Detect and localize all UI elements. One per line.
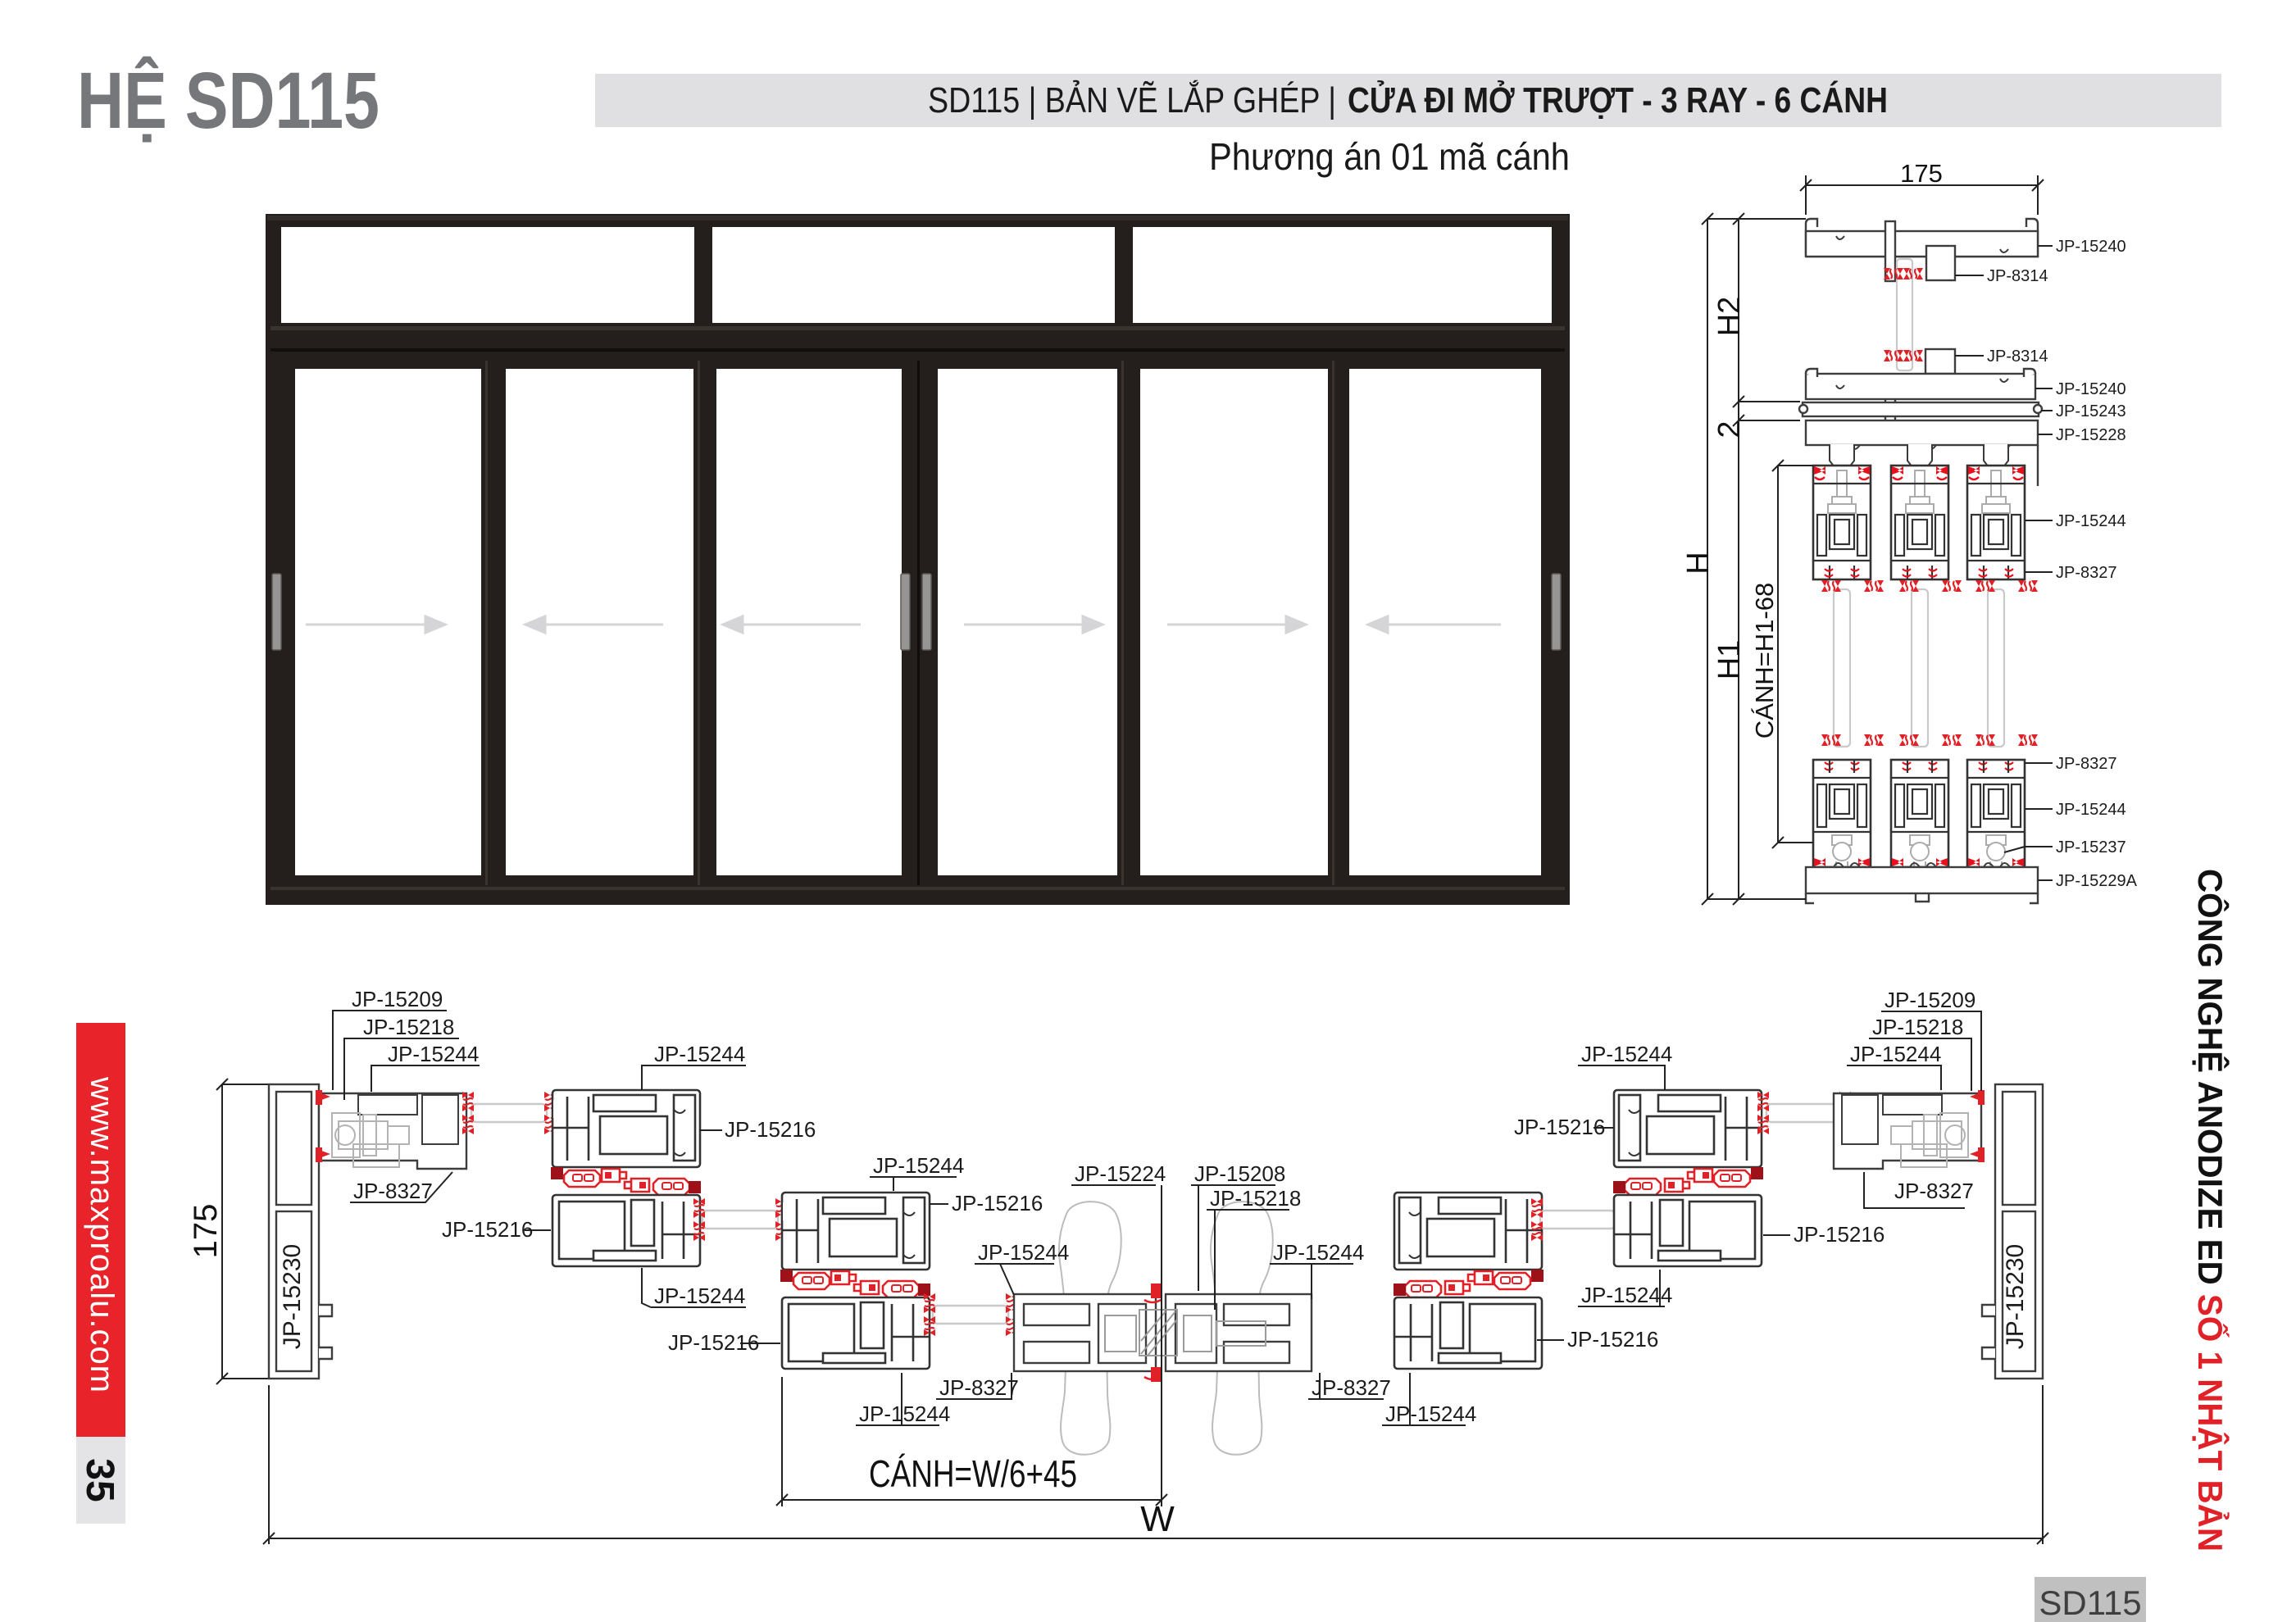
svg-text:JP-15244: JP-15244 <box>654 1042 745 1066</box>
svg-text:JP-15216: JP-15216 <box>668 1330 759 1355</box>
svg-text:JP-15230: JP-15230 <box>2002 1244 2029 1349</box>
svg-text:JP-15240: JP-15240 <box>2056 380 2126 398</box>
svg-text:www.maxproalu.com: www.maxproalu.com <box>84 1076 120 1393</box>
svg-text:JP-8327: JP-8327 <box>939 1375 1019 1400</box>
svg-text:JP-15216: JP-15216 <box>952 1191 1043 1215</box>
svg-text:JP-15244: JP-15244 <box>388 1042 479 1066</box>
svg-text:175: 175 <box>188 1204 224 1259</box>
svg-text:JP-15208: JP-15208 <box>1194 1161 1285 1186</box>
svg-text:JP-15209: JP-15209 <box>352 987 443 1011</box>
svg-text:JP-15244: JP-15244 <box>1850 1042 1941 1066</box>
svg-text:JP-15216: JP-15216 <box>1514 1115 1605 1139</box>
svg-text:JP-15244: JP-15244 <box>1273 1240 1364 1265</box>
svg-text:JP-15216: JP-15216 <box>1567 1327 1658 1352</box>
svg-text:SD115: SD115 <box>2039 1583 2141 1622</box>
svg-text:JP-15224: JP-15224 <box>1075 1161 1166 1186</box>
svg-text:JP-15218: JP-15218 <box>1210 1186 1301 1211</box>
svg-text:H2: H2 <box>1712 297 1747 337</box>
svg-text:35: 35 <box>78 1458 121 1502</box>
svg-text:2: 2 <box>1712 420 1747 438</box>
svg-text:JP-8327: JP-8327 <box>353 1179 433 1203</box>
svg-text:SD115 | BẢN VẼ LẮP GHÉP |: SD115 | BẢN VẼ LẮP GHÉP | <box>928 80 1336 120</box>
svg-text:JP-15244: JP-15244 <box>1581 1283 1672 1307</box>
svg-text:JP-15244: JP-15244 <box>1581 1042 1672 1066</box>
svg-text:JP-15216: JP-15216 <box>725 1117 816 1142</box>
svg-text:JP-15243: JP-15243 <box>2056 402 2126 420</box>
svg-text:Phương án 01 mã cánh: Phương án 01 mã cánh <box>1209 135 1570 178</box>
svg-text:JP-15244: JP-15244 <box>2056 801 2126 819</box>
svg-text:JP-15228: JP-15228 <box>2056 426 2126 444</box>
svg-text:JP-15216: JP-15216 <box>1794 1222 1885 1247</box>
svg-text:JP-15244: JP-15244 <box>654 1284 745 1308</box>
svg-text:JP-15218: JP-15218 <box>1872 1015 1963 1039</box>
svg-text:JP-15244: JP-15244 <box>859 1402 950 1426</box>
svg-text:175: 175 <box>1900 159 1943 188</box>
svg-text:W: W <box>1140 1499 1175 1539</box>
svg-text:CÁNH=W/6+45: CÁNH=W/6+45 <box>869 1452 1077 1495</box>
svg-text:JP-8327: JP-8327 <box>1312 1375 1391 1400</box>
svg-text:JP-15244: JP-15244 <box>1385 1402 1476 1426</box>
svg-text:JP-15216: JP-15216 <box>442 1217 533 1242</box>
svg-text:JP-15244: JP-15244 <box>2056 512 2126 530</box>
svg-text:JP-15244: JP-15244 <box>978 1240 1069 1265</box>
svg-text:CỬA ĐI MỞ TRƯỢT - 3 RAY - 6 CÁ: CỬA ĐI MỞ TRƯỢT - 3 RAY - 6 CÁNH <box>1348 79 1888 120</box>
svg-text:JP-8314: JP-8314 <box>1987 348 2048 366</box>
svg-text:H: H <box>1681 552 1716 574</box>
svg-text:JP-15244: JP-15244 <box>873 1153 964 1178</box>
svg-text:JP-8327: JP-8327 <box>1894 1179 1974 1203</box>
svg-text:JP-8327: JP-8327 <box>2056 564 2117 582</box>
svg-text:JP-8327: JP-8327 <box>2056 755 2117 773</box>
svg-text:JP-15237: JP-15237 <box>2056 838 2126 856</box>
svg-text:JP-15209: JP-15209 <box>1885 988 1975 1012</box>
svg-text:JP-15229A: JP-15229A <box>2056 872 2138 890</box>
svg-text:JP-15240: JP-15240 <box>2056 238 2126 256</box>
svg-text:H1: H1 <box>1712 640 1747 680</box>
svg-text:CÔNG NGHỆ ANODIZE ED SỐ 1 NHẬT: CÔNG NGHỆ ANODIZE ED SỐ 1 NHẬT BẢN <box>2191 869 2230 1552</box>
svg-text:JP-15230: JP-15230 <box>279 1244 306 1349</box>
svg-text:HỆ SD115: HỆ SD115 <box>77 56 380 145</box>
svg-text:JP-8314: JP-8314 <box>1987 267 2048 285</box>
svg-text:JP-15218: JP-15218 <box>363 1015 454 1039</box>
svg-text:CÁNH=H1-68: CÁNH=H1-68 <box>1750 583 1779 738</box>
